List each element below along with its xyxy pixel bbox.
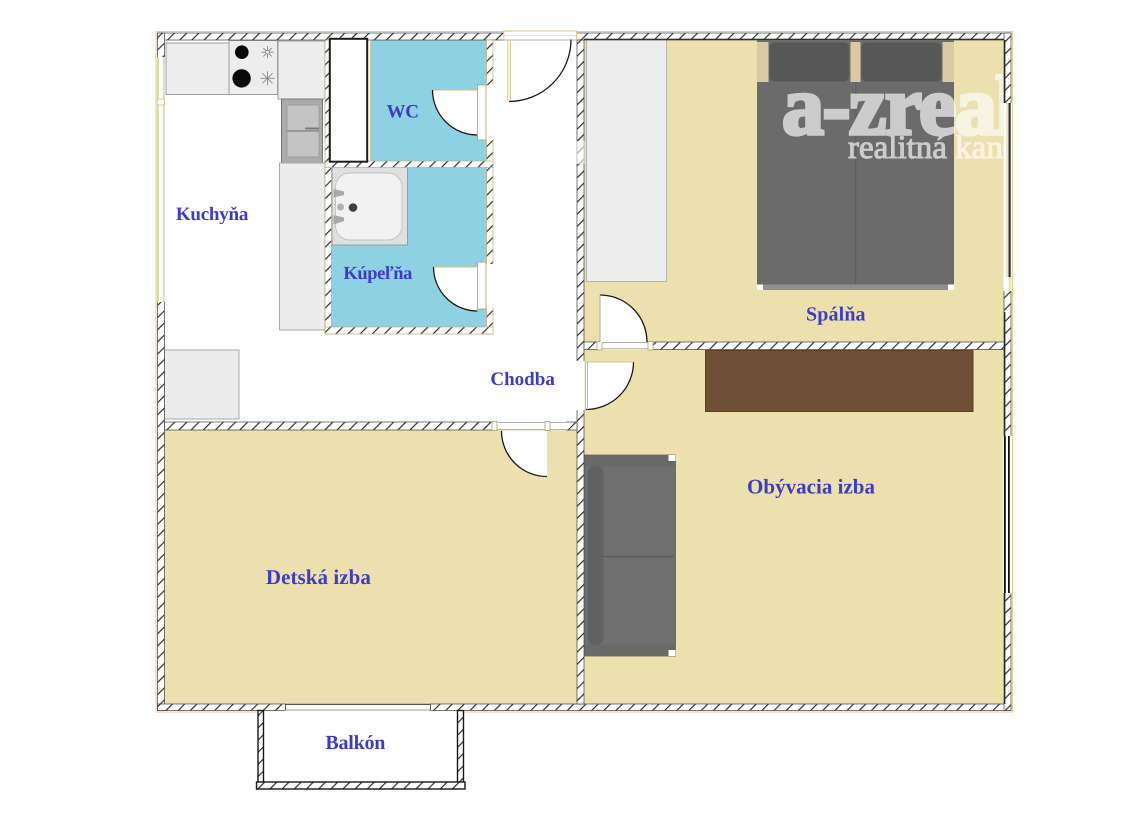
svg-text:Kúpeľňa: Kúpeľňa [343,264,412,284]
svg-text:Kuchyňa: Kuchyňa [176,204,249,225]
svg-text:Spálňa: Spálňa [806,304,866,326]
svg-text:WC: WC [386,102,419,123]
svg-text:Detská izba: Detská izba [266,565,372,589]
svg-text:Obývacia izba: Obývacia izba [747,475,876,499]
svg-text:Balkón: Balkón [325,732,385,754]
svg-text:Chodba: Chodba [490,369,555,390]
